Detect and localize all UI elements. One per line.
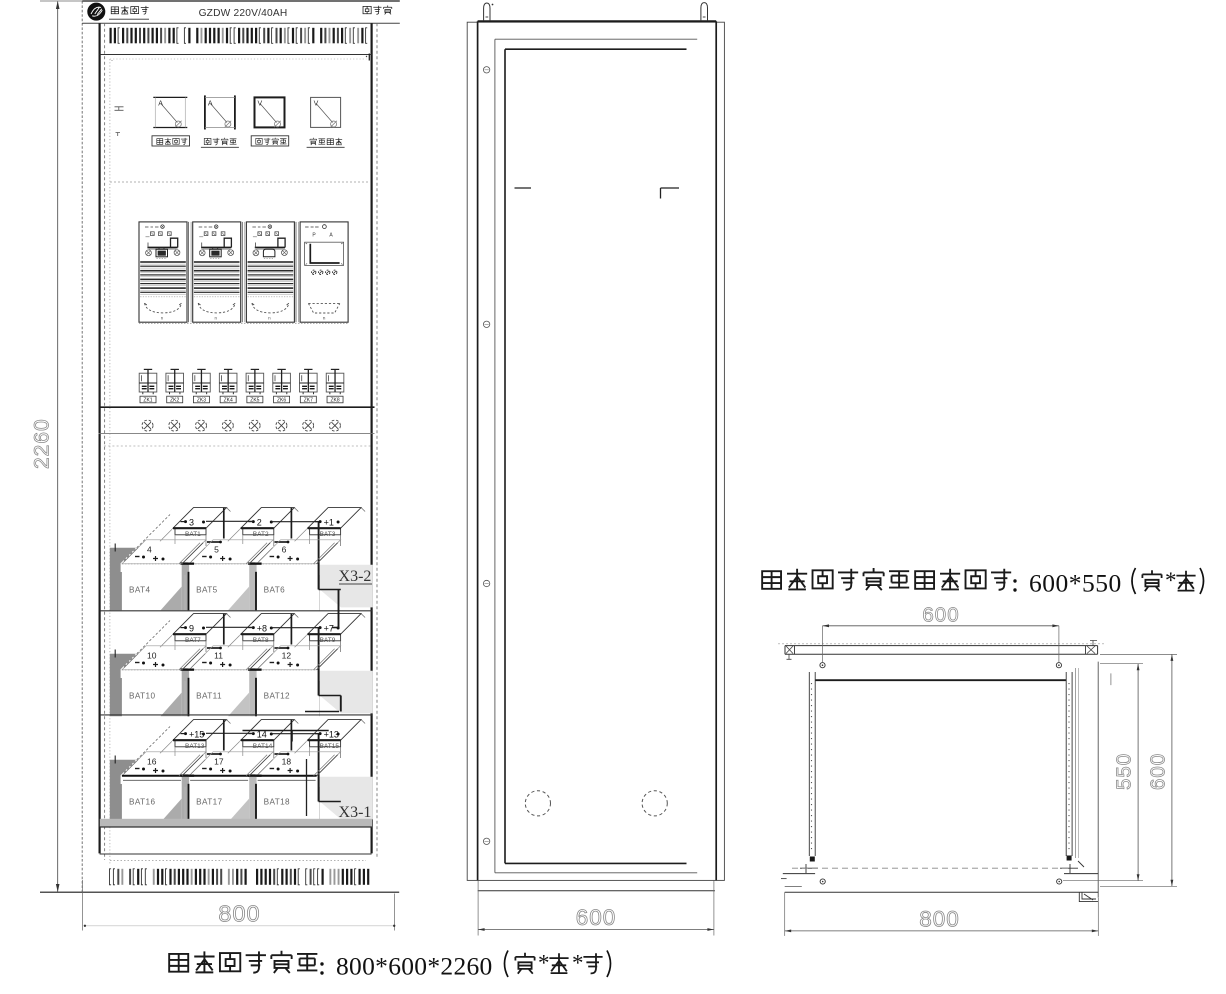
svg-text:BAT16: BAT16 (129, 797, 155, 806)
svg-text:+7: +7 (324, 623, 334, 633)
svg-text:2: 2 (257, 517, 262, 527)
svg-text:BAT12: BAT12 (264, 691, 290, 700)
svg-text:10: 10 (147, 651, 157, 661)
svg-text:*: * (1165, 568, 1177, 593)
svg-text:800: 800 (218, 901, 260, 927)
svg-text:V: V (314, 101, 319, 108)
svg-text:BAT17: BAT17 (196, 797, 222, 806)
svg-text:BAT5: BAT5 (196, 585, 218, 594)
svg-text:ZK6: ZK6 (277, 398, 286, 404)
svg-text:ZK7: ZK7 (304, 398, 313, 404)
svg-text:600: 600 (576, 905, 617, 930)
svg-text:11: 11 (214, 651, 223, 661)
svg-text:+8: +8 (257, 623, 267, 633)
svg-text:BAT2: BAT2 (253, 531, 269, 538)
svg-text:ZK8: ZK8 (330, 398, 339, 404)
svg-text:16: 16 (147, 757, 157, 767)
svg-text:BAT4: BAT4 (129, 585, 151, 594)
svg-text:BAT9: BAT9 (320, 637, 336, 644)
svg-text:800: 800 (919, 907, 960, 932)
svg-text:BAT1: BAT1 (185, 531, 201, 538)
svg-text:3: 3 (189, 517, 194, 527)
svg-text:4: 4 (147, 545, 152, 555)
svg-text:ZK3: ZK3 (197, 398, 206, 404)
svg-text:BAT3: BAT3 (320, 531, 336, 538)
svg-text:X3-2: X3-2 (339, 568, 372, 585)
svg-text:9: 9 (189, 623, 194, 633)
svg-text:+15: +15 (189, 729, 204, 739)
svg-text:6: 6 (282, 545, 287, 555)
svg-text:18: 18 (282, 757, 292, 767)
svg-text:BAT10: BAT10 (129, 691, 155, 700)
svg-text:2260: 2260 (31, 418, 54, 469)
svg-text:600: 600 (1146, 753, 1169, 790)
svg-text:BAT11: BAT11 (196, 691, 222, 700)
svg-text:600*550: 600*550 (1029, 569, 1122, 598)
svg-text:BAT15: BAT15 (320, 743, 340, 750)
svg-text:12: 12 (282, 651, 292, 661)
svg-text:BAT14: BAT14 (253, 743, 273, 750)
svg-text:BAT8: BAT8 (253, 637, 269, 644)
svg-text:ZK2: ZK2 (170, 398, 179, 404)
svg-text:V: V (258, 101, 263, 108)
svg-text:BAT7: BAT7 (185, 637, 201, 644)
svg-text:*: * (538, 951, 550, 976)
svg-text:X3-1: X3-1 (339, 804, 372, 821)
svg-text:17: 17 (214, 757, 224, 767)
svg-text:5: 5 (214, 545, 219, 555)
svg-text:ZK5: ZK5 (250, 398, 259, 404)
svg-text:800*600*2260: 800*600*2260 (336, 952, 493, 981)
svg-text:550: 550 (1113, 753, 1136, 790)
svg-text:600: 600 (922, 604, 959, 627)
svg-text:A: A (158, 101, 163, 108)
svg-text:A: A (208, 101, 213, 108)
svg-text:BAT6: BAT6 (264, 585, 286, 594)
svg-text:+1: +1 (324, 517, 334, 527)
svg-text:GZDW 220V/40AH: GZDW 220V/40AH (199, 8, 288, 19)
svg-text:BAT13: BAT13 (185, 743, 205, 750)
svg-text:*: * (572, 951, 584, 976)
svg-text:ZK1: ZK1 (143, 398, 152, 404)
svg-text:BAT18: BAT18 (264, 797, 290, 806)
svg-text:ZK4: ZK4 (224, 398, 233, 404)
